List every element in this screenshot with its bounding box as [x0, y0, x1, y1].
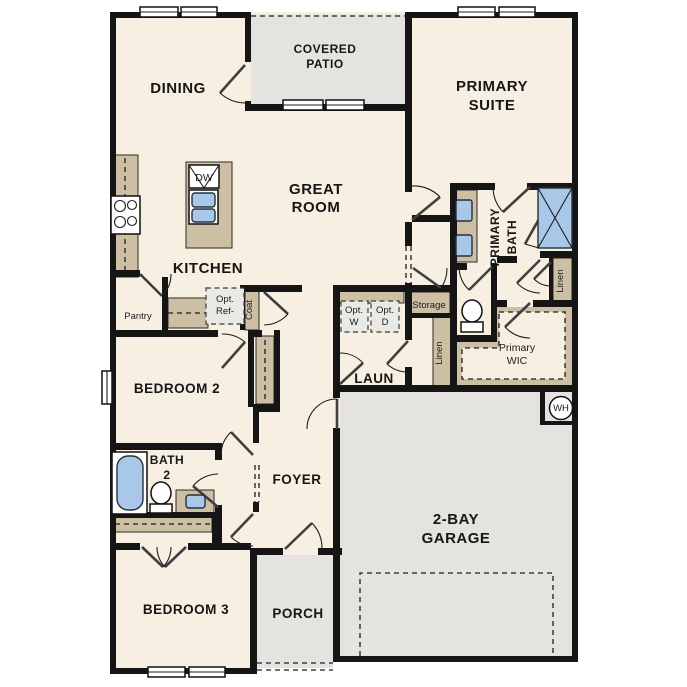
svg-text:W: W	[350, 317, 359, 328]
svg-text:BATH: BATH	[505, 220, 519, 254]
room-label-porch: PORCH	[272, 606, 323, 621]
label-linen-hall: Linen	[434, 341, 445, 364]
room-label-primary-suite: PRIMARY	[456, 78, 528, 95]
window	[140, 7, 178, 17]
window	[181, 7, 217, 17]
svg-text:SUITE: SUITE	[469, 97, 516, 114]
label-linen-bath: Linen	[555, 269, 566, 292]
room-label-laundry: LAUN	[354, 371, 394, 386]
floor-plan-page: DINING COVERED PATIO PRIMARY SUITE GREAT…	[0, 0, 687, 687]
room-label-bedroom3: BEDROOM 3	[143, 602, 229, 617]
room-label-covered-patio: COVERED	[294, 42, 357, 56]
room-label-kitchen: KITCHEN	[173, 260, 243, 277]
label-coat: Coat	[244, 300, 255, 320]
window	[458, 7, 495, 17]
room-label-foyer: FOYER	[272, 472, 321, 487]
svg-text:2: 2	[163, 468, 170, 482]
room-label-bedroom2: BEDROOM 2	[134, 381, 220, 396]
svg-text:GARAGE: GARAGE	[422, 530, 491, 547]
bathtub-icon	[112, 452, 147, 514]
svg-text:ROOM: ROOM	[292, 199, 341, 216]
bath2-toilet-icon	[150, 482, 172, 513]
label-water-heater: WH	[553, 403, 569, 414]
room-label-primary-bath: PRIMARY	[488, 208, 502, 266]
room-label-dining: DINING	[150, 80, 206, 97]
room-label-garage: 2-BAY	[433, 511, 479, 528]
cooktop-icon	[111, 196, 140, 234]
room-label-great-room: GREAT	[289, 181, 343, 198]
window	[102, 371, 112, 404]
bath2-sink-icon	[186, 495, 205, 508]
label-pantry: Pantry	[124, 311, 152, 322]
label-opt-ref: Opt.	[216, 294, 234, 305]
label-opt-washer: Opt.	[345, 305, 363, 316]
label-opt-dryer: Opt.	[376, 305, 394, 316]
kitchen-sink-icon	[189, 190, 218, 224]
svg-text:D: D	[382, 317, 389, 328]
svg-text:Ref-: Ref-	[216, 306, 234, 317]
window	[499, 7, 535, 17]
shower-icon	[538, 188, 572, 248]
primary-toilet-icon	[461, 300, 483, 332]
primary-sink-1	[456, 200, 472, 221]
label-storage: Storage	[412, 300, 445, 311]
window	[189, 667, 225, 677]
window	[326, 100, 364, 110]
svg-text:WIC: WIC	[507, 355, 528, 367]
label-dishwasher: DW	[195, 172, 213, 184]
svg-text:PATIO: PATIO	[306, 57, 343, 71]
room-label-bath2: BATH	[150, 453, 184, 467]
primary-sink-2	[456, 235, 472, 256]
window	[148, 667, 185, 677]
window	[283, 100, 323, 110]
room-label-primary-wic: Primary	[499, 342, 536, 354]
floor-plan: DINING COVERED PATIO PRIMARY SUITE GREAT…	[0, 0, 687, 687]
